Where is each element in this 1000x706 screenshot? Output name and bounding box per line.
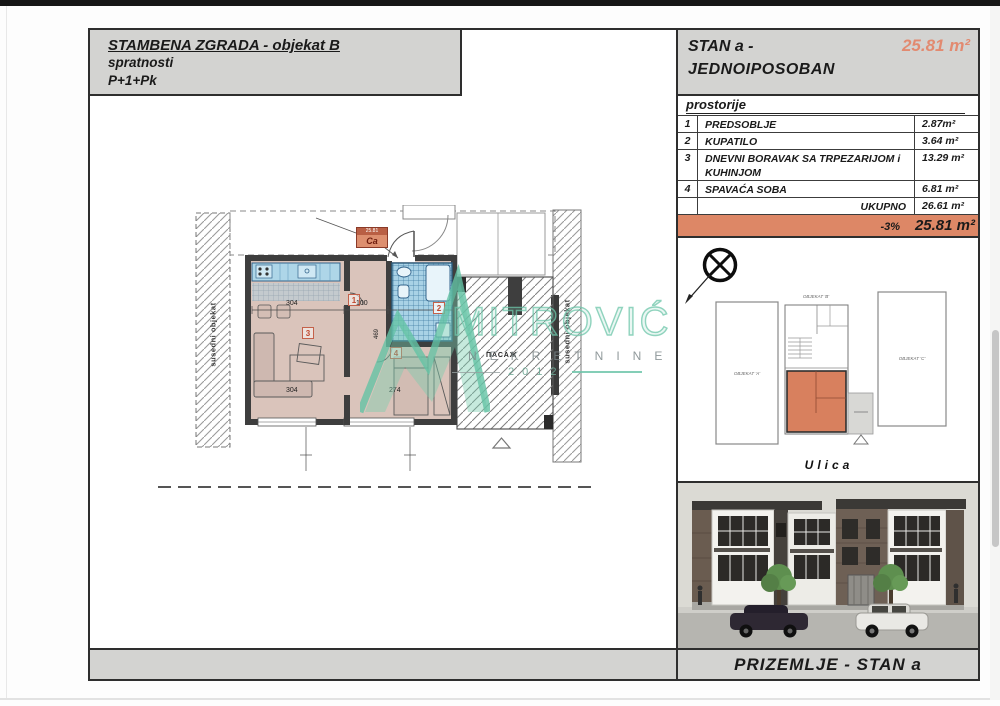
row-num: 4 <box>678 181 698 197</box>
building-b-outline <box>785 305 873 434</box>
render-building <box>692 499 966 605</box>
building-floors: P+1+Pk <box>108 72 460 90</box>
row-area: 2.87m² <box>914 116 978 132</box>
row-name: DNEVNI BORAVAK SA TRPEZARIJOM i KUHINJOM <box>698 150 914 180</box>
unit-tag-code: Ca <box>357 235 387 247</box>
adjacent-left-label: susedni objekat <box>209 290 218 380</box>
table-row: 3 DNEVNI BORAVAK SA TRPEZARIJOM i KUHINJ… <box>678 150 978 181</box>
row-area: 3.64 m² <box>914 133 978 149</box>
dim-304-top: 304 <box>286 300 298 307</box>
row-area: 13.29 m² <box>914 150 978 180</box>
watermark-rule-right <box>572 371 642 373</box>
right-column: STAN a - JEDNOIPOSOBAN 25.81 m² prostori… <box>676 30 978 679</box>
unit-area-value: 25.81 m² <box>902 36 970 56</box>
discount-label: -3% <box>880 221 900 233</box>
table-title-row: prostorije <box>678 96 978 116</box>
compass-icon <box>685 250 736 305</box>
building-render-image <box>678 483 978 648</box>
building-title: STAMBENA ZGRADA - objekat B <box>108 37 460 54</box>
unit-name-line2: JEDNOIPOSOBAN <box>688 61 835 79</box>
row-num: 3 <box>678 150 698 180</box>
row-name: PREDSOBLJE <box>698 116 914 132</box>
table-row: 4 SPAVAĆA SOBA 6.81 m² <box>678 181 978 198</box>
dim-304-bottom: 304 <box>286 387 298 394</box>
unit-tag: 25.81 Ca <box>356 227 388 248</box>
watermark-subtitle: NEKRETNINE <box>468 349 675 363</box>
table-title: prostorije <box>686 96 965 114</box>
footer-bar-right: PRIZEMLJE - STAN a <box>678 648 978 679</box>
unit-header: STAN a - JEDNOIPOSOBAN 25.81 m² <box>678 30 978 96</box>
row-num: 2 <box>678 133 698 149</box>
title-block: STAMBENA ZGRADA - objekat B spratnosti P… <box>90 30 462 96</box>
document-page: STAMBENA ZGRADA - objekat B spratnosti P… <box>0 0 1000 706</box>
watermark-year-row: 2012 <box>452 366 642 378</box>
footer-bar-left <box>90 648 678 679</box>
watermark-brand: MITROVIĆ <box>452 300 672 345</box>
bottom-edge-line <box>0 698 1000 700</box>
site-plan-drawing: OBJEKAT 'A' OBJEKAT 'B' OBJEKAT 'C' Ulic… <box>678 238 978 481</box>
row-num <box>678 198 698 214</box>
entrance-triangle-icon <box>493 438 510 448</box>
site-triangle-icon <box>854 435 868 444</box>
unit-tag-area: 25.81 <box>357 228 387 235</box>
top-edge-bar <box>0 0 1000 6</box>
watermark-rule-left <box>452 372 500 373</box>
objekat-b-label: OBJEKAT 'B' <box>803 294 829 299</box>
footer-label: PRIZEMLJE - STAN a <box>734 655 922 674</box>
table-row: 2 KUPATILO 3.64 m² <box>678 133 978 150</box>
total-label: UKUPNO <box>698 198 914 214</box>
row-area: 6.81 m² <box>914 181 978 197</box>
discount-row: -3% 25.81 m² <box>678 215 978 238</box>
street-label: Ulica <box>805 458 854 472</box>
table-row: 1 PREDSOBLJE 2.87m² <box>678 116 978 133</box>
row-name: SPAVAĆA SOBA <box>698 181 914 197</box>
discounted-area: 25.81 m² <box>915 217 975 234</box>
row-name: KUPATILO <box>698 133 914 149</box>
unit-name-line1: STAN a - <box>688 38 753 56</box>
row-num: 1 <box>678 116 698 132</box>
building-render <box>678 483 978 648</box>
scrollbar-thumb[interactable] <box>992 330 999 547</box>
building-subtitle: spratnosti <box>108 54 460 72</box>
room-marker-3: 3 <box>302 327 314 339</box>
site-plan: OBJEKAT 'A' OBJEKAT 'B' OBJEKAT 'C' Ulic… <box>678 238 978 483</box>
total-area: 26.61 m² <box>914 198 978 214</box>
total-row: UKUPNO 26.61 m² <box>678 198 978 215</box>
objekat-a-label: OBJEKAT 'A' <box>734 371 760 376</box>
left-edge-line <box>6 6 7 700</box>
objekat-c-label: OBJEKAT 'C' <box>899 356 926 361</box>
watermark-year: 2012 <box>508 366 564 378</box>
